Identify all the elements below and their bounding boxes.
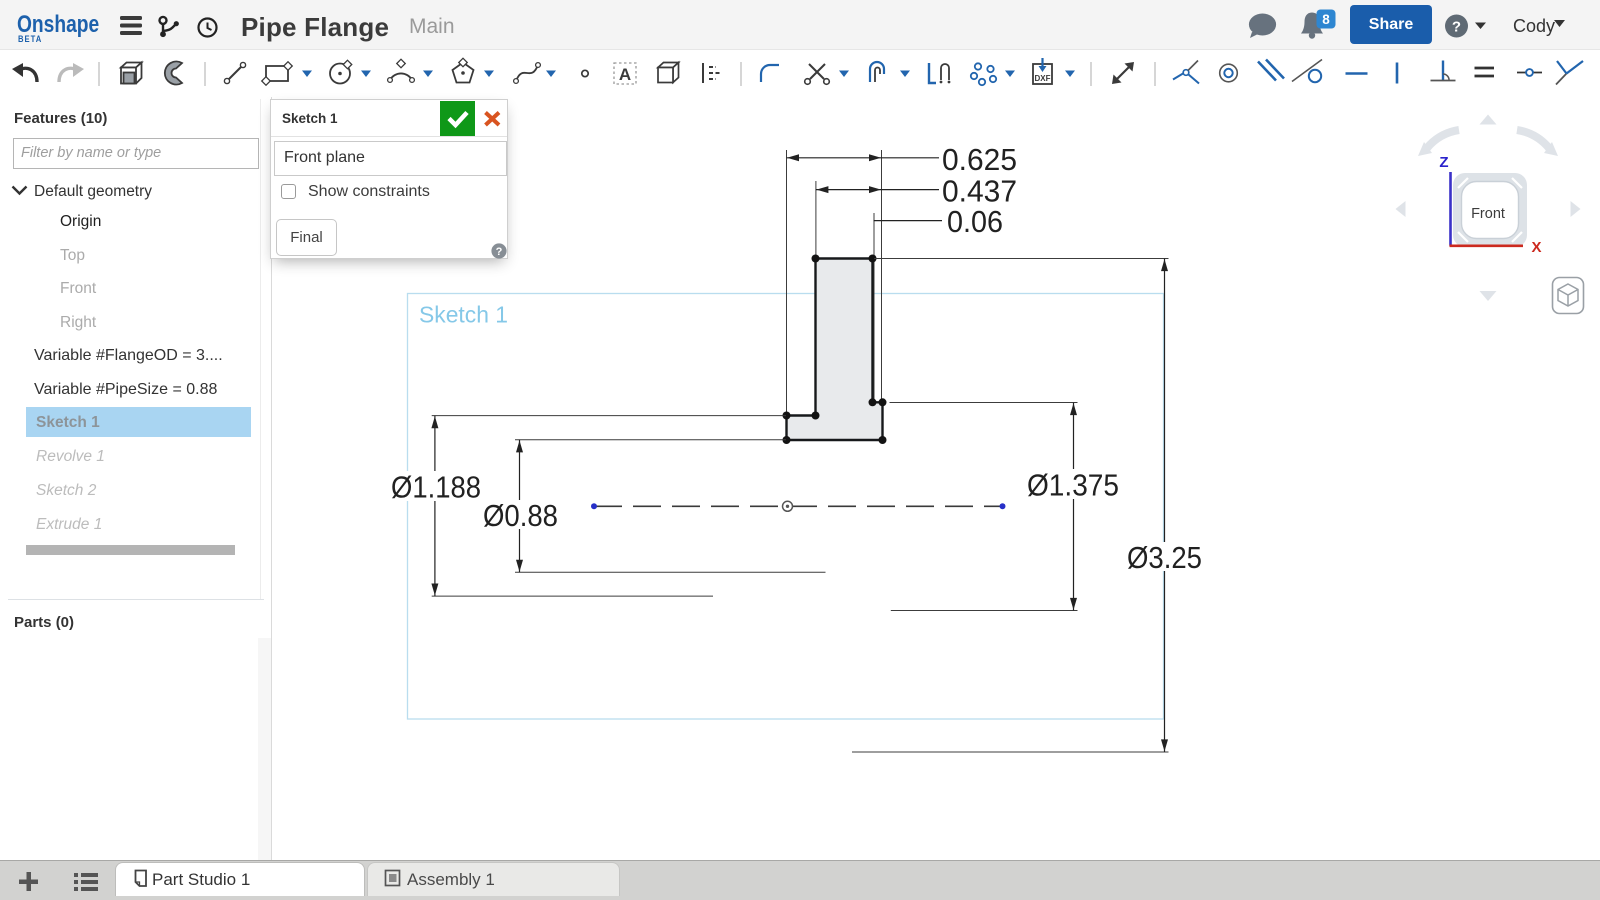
svg-text:Ø0.88: Ø0.88 bbox=[483, 498, 558, 533]
svg-text:?: ? bbox=[496, 246, 503, 258]
svg-text:Ø1.188: Ø1.188 bbox=[391, 470, 481, 505]
svg-text:X: X bbox=[1531, 239, 1541, 256]
svg-text:Sketch 1: Sketch 1 bbox=[419, 302, 508, 328]
svg-text:Z: Z bbox=[1439, 154, 1448, 171]
svg-text:0.625: 0.625 bbox=[942, 142, 1017, 177]
svg-text:0.06: 0.06 bbox=[947, 204, 1003, 239]
svg-text:Ø1.375: Ø1.375 bbox=[1027, 468, 1119, 503]
svg-text:Front: Front bbox=[1471, 206, 1505, 222]
svg-text:Ø3.25: Ø3.25 bbox=[1127, 540, 1202, 575]
